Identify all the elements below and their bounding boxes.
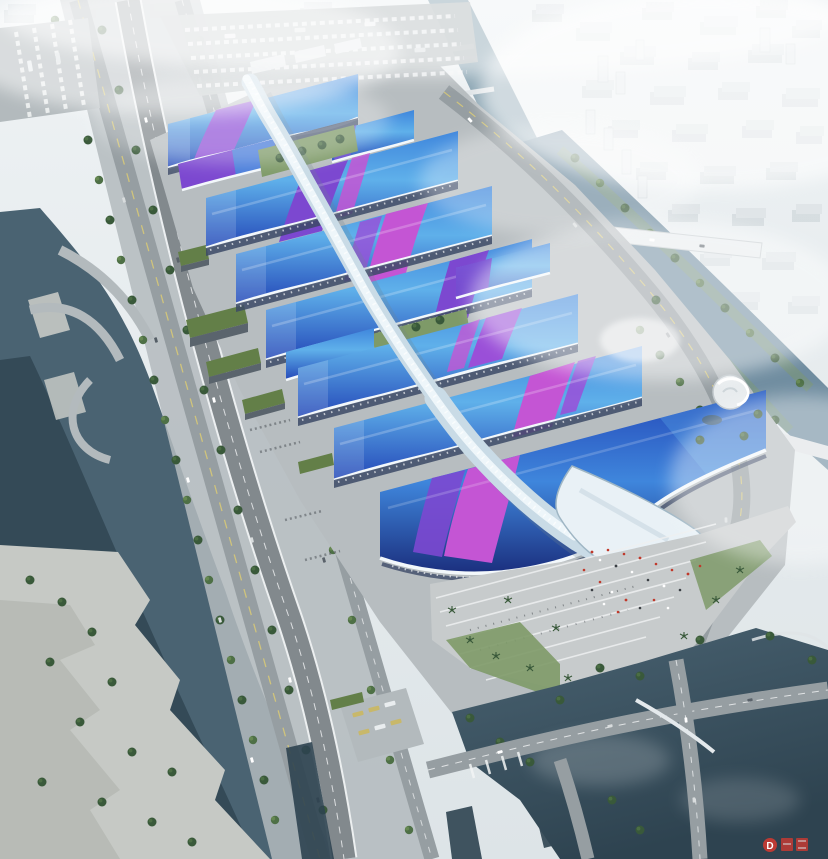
watermark-symbol: D bbox=[766, 841, 773, 852]
watermark: D bbox=[763, 838, 808, 852]
aerial-rendering-scene: D bbox=[0, 0, 828, 859]
rendering-canvas: D bbox=[0, 0, 828, 859]
